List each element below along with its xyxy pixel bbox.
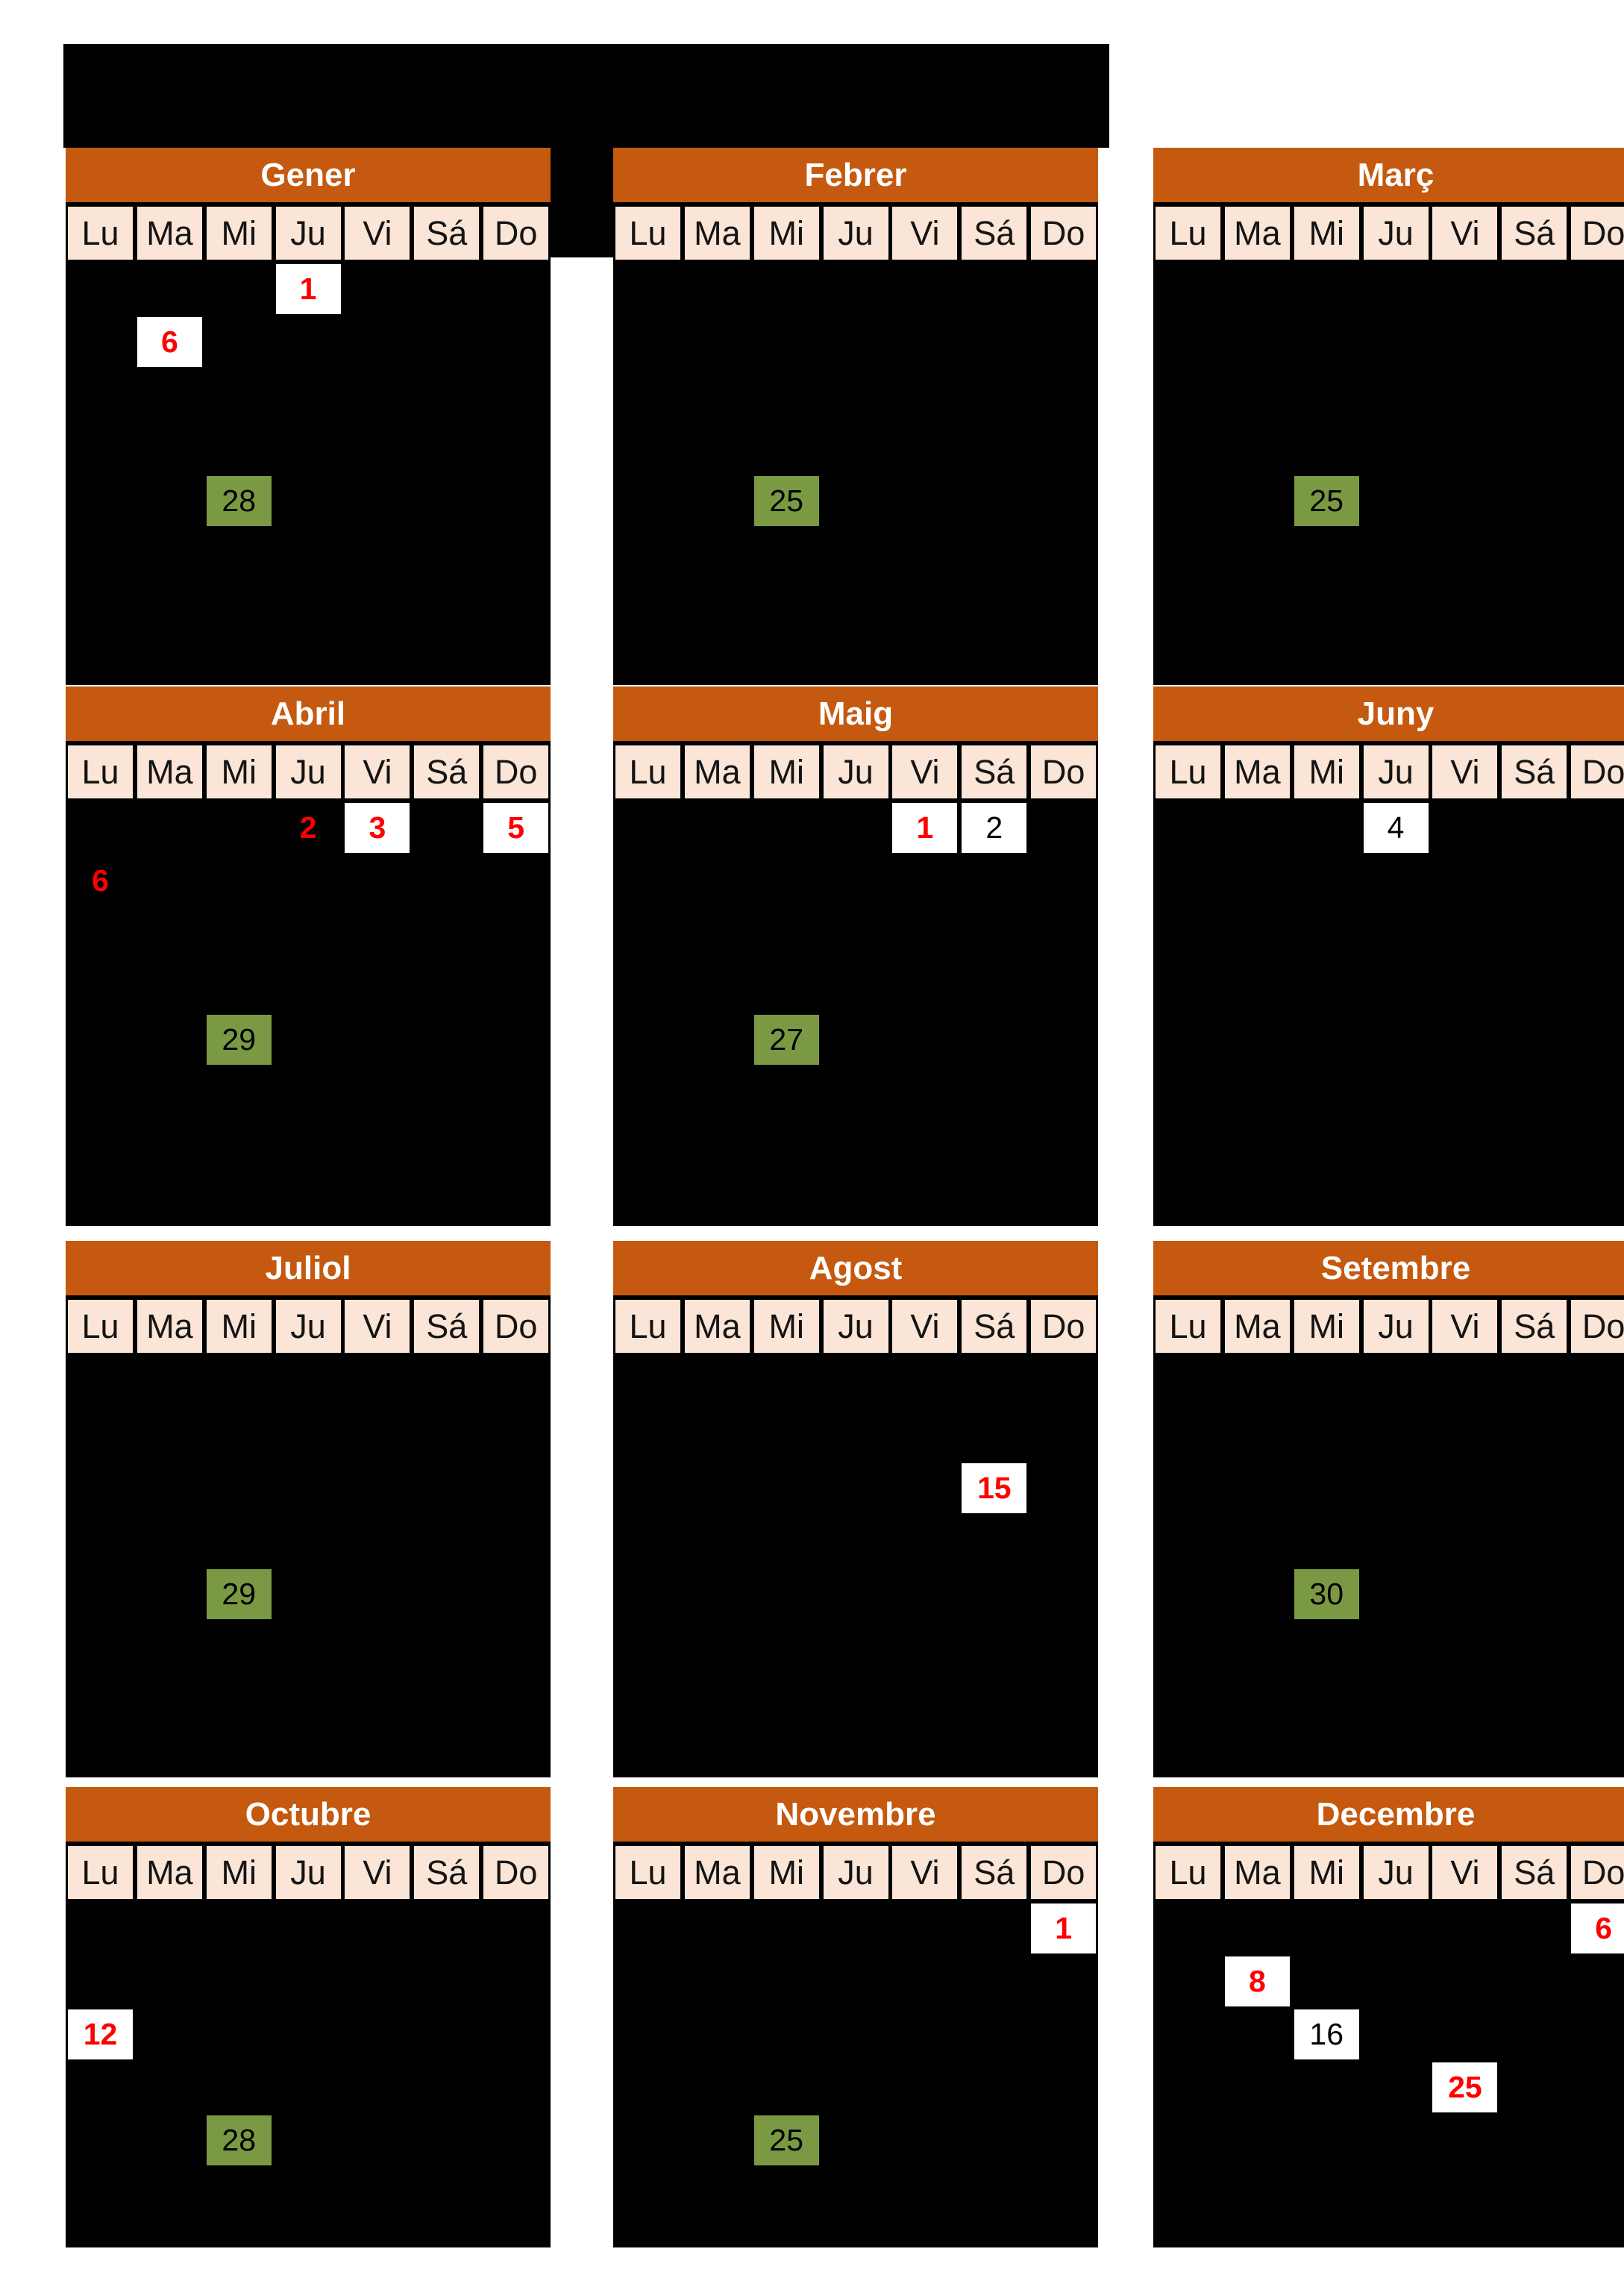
date-març-25: 25 bbox=[1294, 476, 1359, 526]
weekday-header-mi: Mi bbox=[1294, 207, 1359, 260]
weekday-row: LuMaMiJuViSáDo bbox=[613, 207, 1098, 260]
weekday-row: LuMaMiJuViSáDo bbox=[1153, 1300, 1624, 1353]
weekday-header-lu: Lu bbox=[1156, 745, 1220, 798]
date-decembre-6: 6 bbox=[1571, 1903, 1624, 1953]
weekday-row: LuMaMiJuViSáDo bbox=[66, 207, 551, 260]
weekday-header-sá: Sá bbox=[1502, 1846, 1567, 1899]
weekday-header-ma: Ma bbox=[1225, 1300, 1290, 1353]
weekday-header-vi: Vi bbox=[345, 207, 410, 260]
month-febrer: FebrerLuMaMiJuViSáDo25 bbox=[613, 148, 1098, 685]
weekday-header-sá: Sá bbox=[414, 1846, 479, 1899]
weekday-header-ju: Ju bbox=[1364, 1846, 1429, 1899]
month-title: Febrer bbox=[805, 157, 907, 194]
weekday-header-do: Do bbox=[483, 1846, 548, 1899]
weekday-header-ju: Ju bbox=[276, 207, 341, 260]
weekday-header-ma: Ma bbox=[1225, 745, 1290, 798]
weekday-header-sá: Sá bbox=[414, 1300, 479, 1353]
weekday-header-vi: Vi bbox=[1432, 745, 1497, 798]
date-febrer-25: 25 bbox=[754, 476, 819, 526]
month-title: Setembre bbox=[1321, 1250, 1471, 1287]
weekday-row: LuMaMiJuViSáDo bbox=[1153, 1846, 1624, 1899]
date-setembre-30: 30 bbox=[1294, 1569, 1359, 1619]
weekday-header-mi: Mi bbox=[754, 745, 819, 798]
weekday-header-do: Do bbox=[483, 1300, 548, 1353]
weekday-header-ma: Ma bbox=[1225, 1846, 1290, 1899]
weekday-header-ju: Ju bbox=[1364, 207, 1429, 260]
month-novembre: NovembreLuMaMiJuViSáDo125 bbox=[613, 1787, 1098, 2247]
date-decembre-8: 8 bbox=[1225, 1956, 1290, 2006]
month-title: Octubre bbox=[245, 1796, 371, 1833]
date-grid: 25 bbox=[613, 263, 1098, 685]
weekday-header-ju: Ju bbox=[1364, 1300, 1429, 1353]
weekday-header-lu: Lu bbox=[68, 745, 133, 798]
weekday-header-do: Do bbox=[1031, 207, 1096, 260]
month-octubre: OctubreLuMaMiJuViSáDo1228 bbox=[66, 1787, 551, 2247]
date-gener-6: 6 bbox=[137, 317, 202, 367]
date-agost-15: 15 bbox=[962, 1463, 1026, 1513]
weekday-header-ju: Ju bbox=[276, 1846, 341, 1899]
month-maig: MaigLuMaMiJuViSáDo1227 bbox=[613, 686, 1098, 1226]
month-juny: JunyLuMaMiJuViSáDo4 bbox=[1153, 686, 1624, 1226]
month-decembre: DecembreLuMaMiJuViSáDo681625 bbox=[1153, 1787, 1624, 2247]
weekday-header-vi: Vi bbox=[1432, 207, 1497, 260]
weekday-header-lu: Lu bbox=[68, 1846, 133, 1899]
date-grid: 681625 bbox=[1153, 1903, 1624, 2247]
month-header: Juliol bbox=[66, 1241, 551, 1295]
date-grid: 125 bbox=[613, 1903, 1098, 2247]
weekday-row: LuMaMiJuViSáDo bbox=[66, 745, 551, 798]
weekday-row: LuMaMiJuViSáDo bbox=[613, 1846, 1098, 1899]
weekday-header-ju: Ju bbox=[276, 745, 341, 798]
month-header: Març bbox=[1153, 148, 1624, 202]
month-header: Maig bbox=[613, 686, 1098, 741]
weekday-header-mi: Mi bbox=[1294, 745, 1359, 798]
top-banner-gap-filler bbox=[551, 148, 615, 257]
weekday-header-do: Do bbox=[1571, 207, 1624, 260]
weekday-header-sá: Sá bbox=[1502, 745, 1567, 798]
weekday-header-sá: Sá bbox=[962, 1846, 1026, 1899]
top-banner bbox=[63, 44, 1109, 148]
weekday-header-do: Do bbox=[1571, 1300, 1624, 1353]
weekday-header-ju: Ju bbox=[276, 1300, 341, 1353]
weekday-header-ma: Ma bbox=[137, 207, 202, 260]
date-grid: 4 bbox=[1153, 802, 1624, 1226]
weekday-header-do: Do bbox=[1571, 745, 1624, 798]
date-gener-1: 1 bbox=[276, 264, 341, 314]
weekday-header-lu: Lu bbox=[1156, 207, 1220, 260]
weekday-header-do: Do bbox=[1031, 1846, 1096, 1899]
weekday-row: LuMaMiJuViSáDo bbox=[613, 1300, 1098, 1353]
weekday-row: LuMaMiJuViSáDo bbox=[613, 745, 1098, 798]
weekday-header-mi: Mi bbox=[207, 1300, 272, 1353]
weekday-header-lu: Lu bbox=[615, 1300, 680, 1353]
month-juliol: JuliolLuMaMiJuViSáDo29 bbox=[66, 1241, 551, 1777]
weekday-header-lu: Lu bbox=[1156, 1300, 1220, 1353]
date-abril-6: 6 bbox=[68, 856, 133, 906]
weekday-header-mi: Mi bbox=[754, 1300, 819, 1353]
date-decembre-25: 25 bbox=[1432, 2062, 1497, 2112]
date-abril-2: 2 bbox=[276, 803, 341, 853]
weekday-header-mi: Mi bbox=[754, 1846, 819, 1899]
weekday-header-do: Do bbox=[483, 745, 548, 798]
weekday-header-lu: Lu bbox=[615, 207, 680, 260]
weekday-header-ju: Ju bbox=[824, 207, 888, 260]
month-header: Abril bbox=[66, 686, 551, 741]
weekday-header-ma: Ma bbox=[137, 1300, 202, 1353]
weekday-header-lu: Lu bbox=[615, 1846, 680, 1899]
weekday-header-vi: Vi bbox=[892, 1846, 957, 1899]
weekday-header-vi: Vi bbox=[345, 1846, 410, 1899]
weekday-header-sá: Sá bbox=[962, 745, 1026, 798]
date-novembre-1: 1 bbox=[1031, 1903, 1096, 1953]
weekday-header-lu: Lu bbox=[68, 1300, 133, 1353]
month-title: Abril bbox=[271, 695, 345, 733]
weekday-header-sá: Sá bbox=[962, 207, 1026, 260]
weekday-header-lu: Lu bbox=[68, 207, 133, 260]
weekday-header-mi: Mi bbox=[1294, 1300, 1359, 1353]
weekday-header-ma: Ma bbox=[685, 1300, 750, 1353]
weekday-header-sá: Sá bbox=[414, 745, 479, 798]
weekday-header-mi: Mi bbox=[207, 207, 272, 260]
month-title: Agost bbox=[809, 1250, 903, 1287]
date-grid: 29 bbox=[66, 1357, 551, 1777]
month-title: Març bbox=[1358, 157, 1435, 194]
month-header: Gener bbox=[66, 148, 551, 202]
date-grid: 235629 bbox=[66, 802, 551, 1226]
weekday-header-ju: Ju bbox=[824, 745, 888, 798]
month-header: Decembre bbox=[1153, 1787, 1624, 1842]
weekday-header-ma: Ma bbox=[137, 745, 202, 798]
month-abril: AbrilLuMaMiJuViSáDo235629 bbox=[66, 686, 551, 1226]
weekday-row: LuMaMiJuViSáDo bbox=[1153, 207, 1624, 260]
date-grid: 1227 bbox=[613, 802, 1098, 1226]
weekday-header-vi: Vi bbox=[892, 207, 957, 260]
weekday-header-mi: Mi bbox=[207, 1846, 272, 1899]
weekday-header-vi: Vi bbox=[1432, 1300, 1497, 1353]
month-març: MarçLuMaMiJuViSáDo25 bbox=[1153, 148, 1624, 685]
weekday-row: LuMaMiJuViSáDo bbox=[66, 1300, 551, 1353]
month-header: Agost bbox=[613, 1241, 1098, 1295]
date-octubre-12: 12 bbox=[68, 2009, 133, 2059]
weekday-row: LuMaMiJuViSáDo bbox=[66, 1846, 551, 1899]
weekday-header-do: Do bbox=[1031, 745, 1096, 798]
month-header: Novembre bbox=[613, 1787, 1098, 1842]
date-maig-27: 27 bbox=[754, 1015, 819, 1065]
month-title: Novembre bbox=[775, 1796, 935, 1833]
date-grid: 1628 bbox=[66, 263, 551, 685]
date-abril-3: 3 bbox=[345, 803, 410, 853]
month-header: Octubre bbox=[66, 1787, 551, 1842]
weekday-header-ma: Ma bbox=[685, 1846, 750, 1899]
weekday-header-ju: Ju bbox=[824, 1846, 888, 1899]
weekday-header-do: Do bbox=[1031, 1300, 1096, 1353]
weekday-header-do: Do bbox=[483, 207, 548, 260]
date-grid: 30 bbox=[1153, 1357, 1624, 1777]
weekday-header-vi: Vi bbox=[345, 1300, 410, 1353]
date-abril-29: 29 bbox=[207, 1015, 272, 1065]
date-decembre-16: 16 bbox=[1294, 2009, 1359, 2059]
date-novembre-25: 25 bbox=[754, 2115, 819, 2165]
weekday-header-ju: Ju bbox=[824, 1300, 888, 1353]
date-abril-5: 5 bbox=[483, 803, 548, 853]
date-gener-28: 28 bbox=[207, 476, 272, 526]
weekday-header-sá: Sá bbox=[1502, 1300, 1567, 1353]
weekday-header-do: Do bbox=[1571, 1846, 1624, 1899]
month-agost: AgostLuMaMiJuViSáDo15 bbox=[613, 1241, 1098, 1777]
weekday-header-vi: Vi bbox=[345, 745, 410, 798]
month-header: Febrer bbox=[613, 148, 1098, 202]
date-juliol-29: 29 bbox=[207, 1569, 272, 1619]
weekday-header-vi: Vi bbox=[1432, 1846, 1497, 1899]
date-grid: 25 bbox=[1153, 263, 1624, 685]
month-title: Gener bbox=[260, 157, 355, 194]
weekday-header-sá: Sá bbox=[1502, 207, 1567, 260]
month-title: Maig bbox=[818, 695, 893, 733]
weekday-header-ma: Ma bbox=[137, 1846, 202, 1899]
date-maig-2: 2 bbox=[962, 803, 1026, 853]
weekday-header-ma: Ma bbox=[685, 745, 750, 798]
month-header: Juny bbox=[1153, 686, 1624, 741]
month-setembre: SetembreLuMaMiJuViSáDo30 bbox=[1153, 1241, 1624, 1777]
weekday-header-lu: Lu bbox=[615, 745, 680, 798]
date-octubre-28: 28 bbox=[207, 2115, 272, 2165]
weekday-header-mi: Mi bbox=[754, 207, 819, 260]
month-title: Juny bbox=[1358, 695, 1435, 733]
date-maig-1: 1 bbox=[892, 803, 957, 853]
month-title: Juliol bbox=[266, 1250, 351, 1287]
weekday-header-ma: Ma bbox=[1225, 207, 1290, 260]
date-juny-4: 4 bbox=[1364, 803, 1429, 853]
weekday-header-sá: Sá bbox=[962, 1300, 1026, 1353]
month-header: Setembre bbox=[1153, 1241, 1624, 1295]
month-title: Decembre bbox=[1317, 1796, 1476, 1833]
weekday-header-vi: Vi bbox=[892, 745, 957, 798]
date-grid: 1228 bbox=[66, 1903, 551, 2247]
weekday-header-vi: Vi bbox=[892, 1300, 957, 1353]
weekday-header-mi: Mi bbox=[1294, 1846, 1359, 1899]
weekday-header-sá: Sá bbox=[414, 207, 479, 260]
weekday-header-ju: Ju bbox=[1364, 745, 1429, 798]
date-grid: 15 bbox=[613, 1357, 1098, 1777]
weekday-row: LuMaMiJuViSáDo bbox=[1153, 745, 1624, 798]
month-gener: GenerLuMaMiJuViSáDo1628 bbox=[66, 148, 551, 685]
weekday-header-mi: Mi bbox=[207, 745, 272, 798]
weekday-header-lu: Lu bbox=[1156, 1846, 1220, 1899]
weekday-header-ma: Ma bbox=[685, 207, 750, 260]
